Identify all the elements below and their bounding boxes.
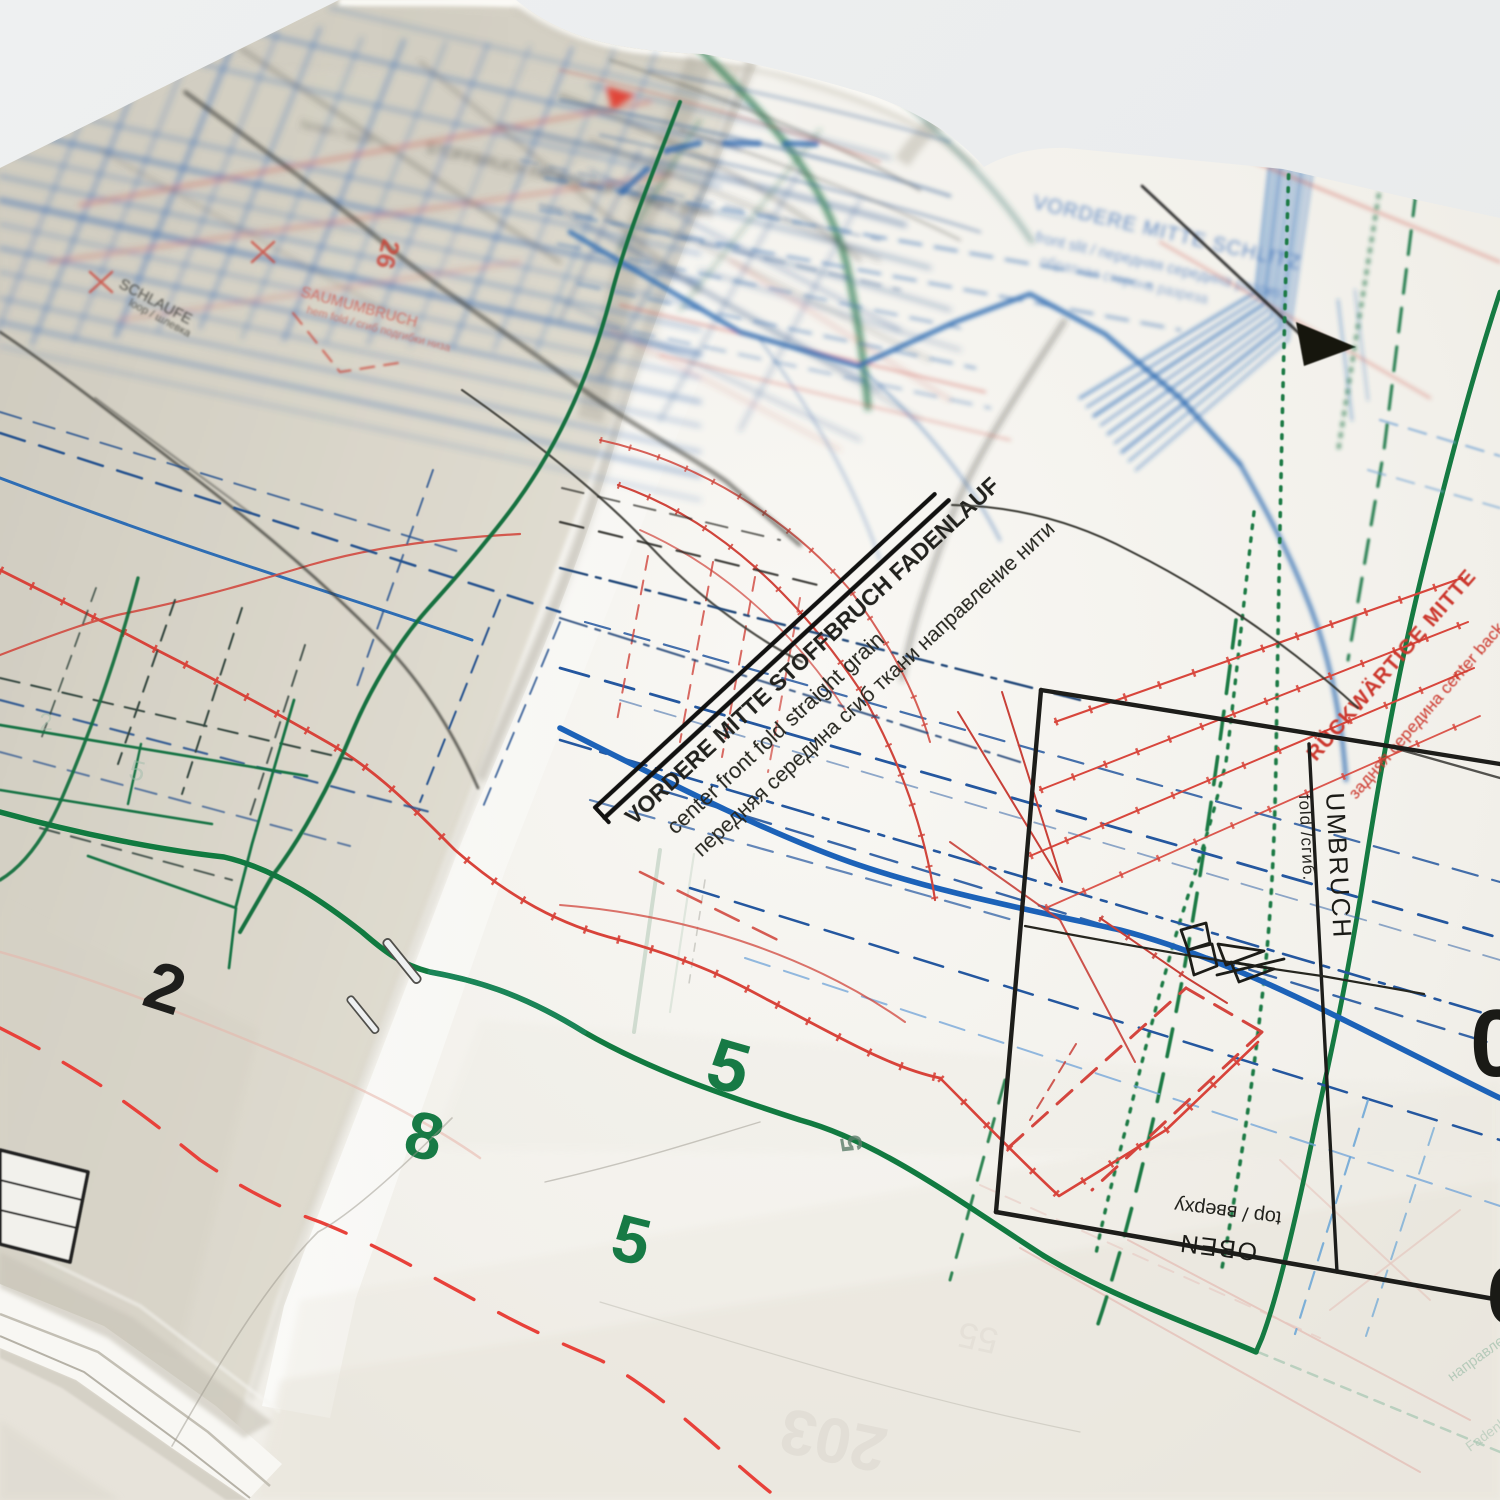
svg-text:55: 55 xyxy=(954,1314,1002,1362)
svg-text:0: 0 xyxy=(1470,990,1500,1097)
svg-text:6: 6 xyxy=(1487,1248,1500,1342)
svg-text:2: 2 xyxy=(39,709,52,736)
